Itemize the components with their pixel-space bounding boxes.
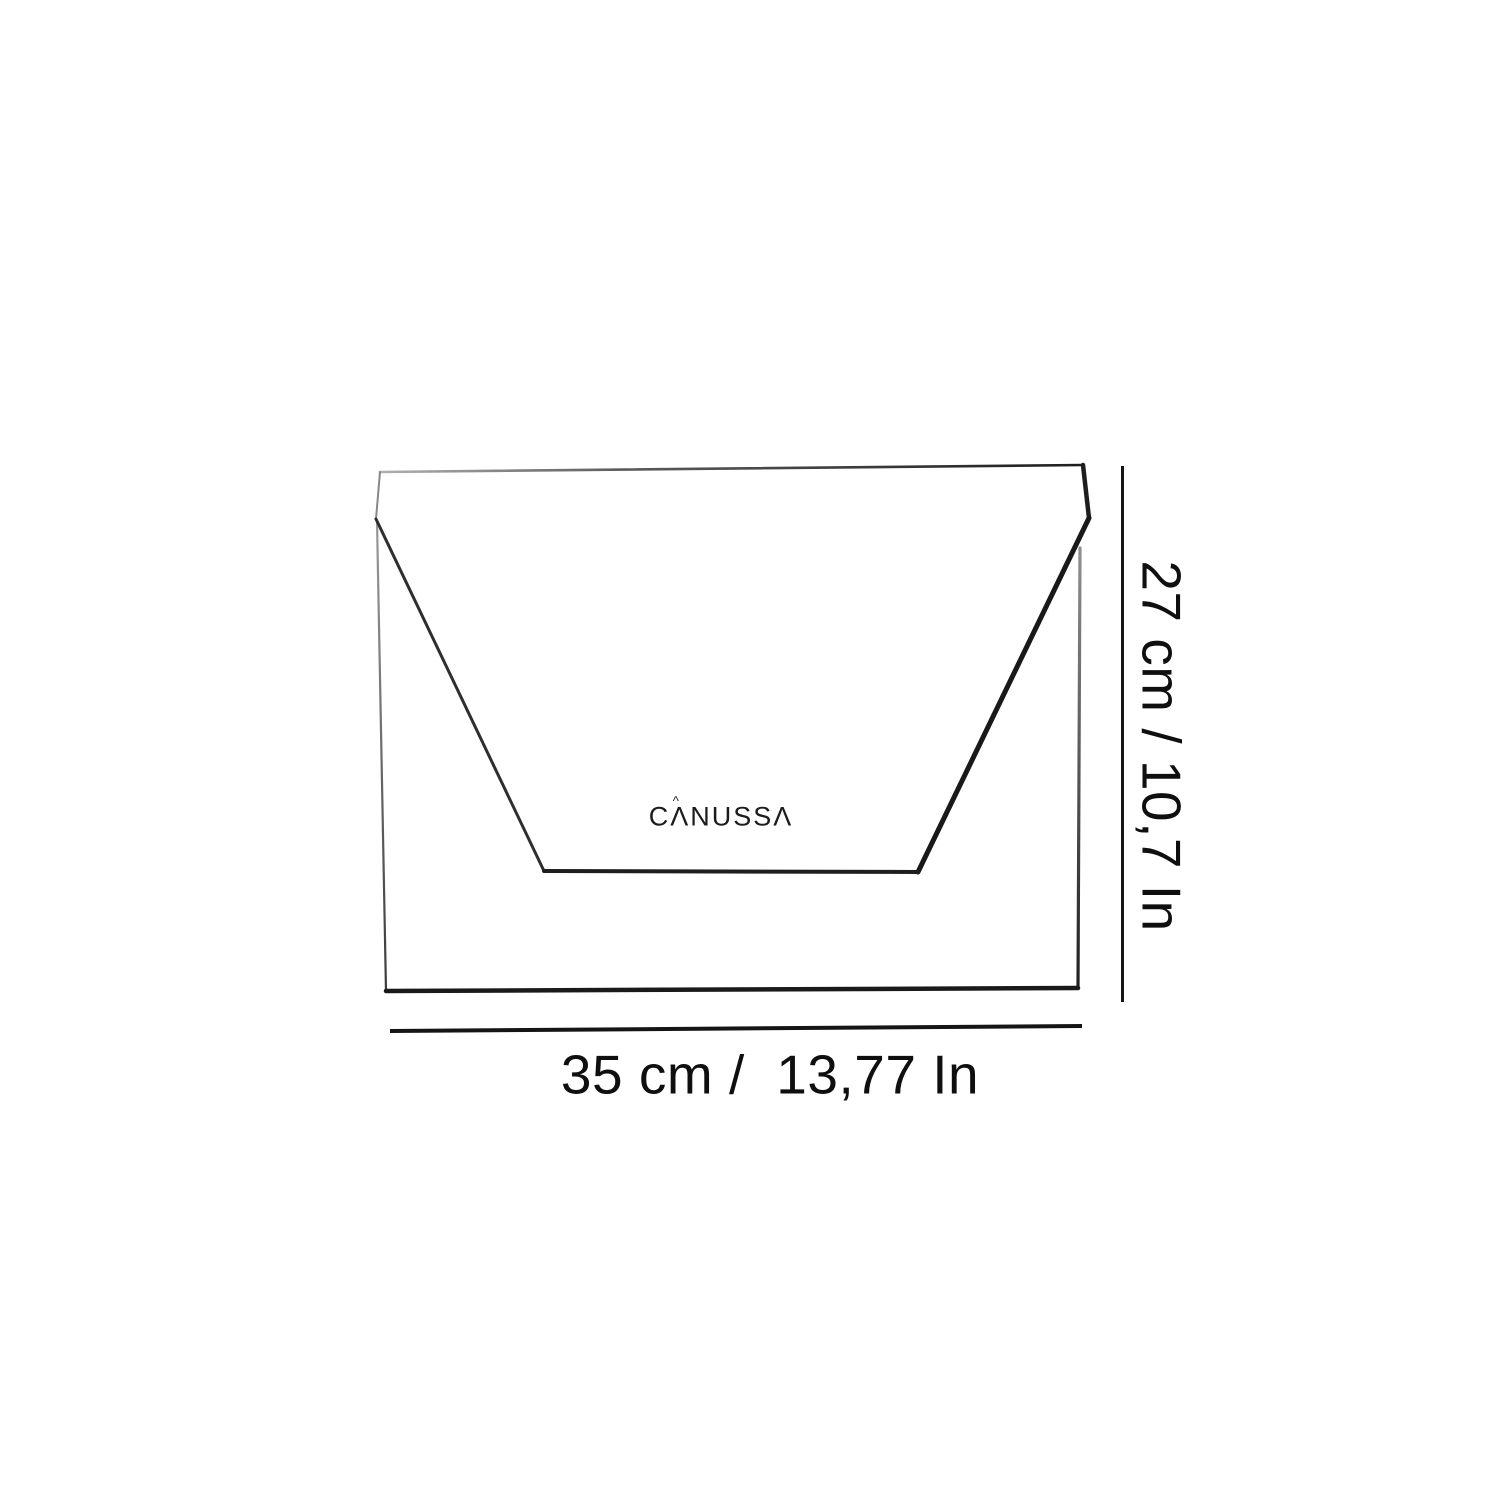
body-bottom-edge	[386, 988, 1078, 991]
height-dimension-label: 27 cm / 10,7 In	[1129, 560, 1192, 931]
width-dimension-label: 35 cm / 13,77 In	[561, 1043, 979, 1106]
flap-left-diagonal	[376, 519, 544, 871]
flap-right-diagonal	[918, 518, 1089, 872]
logo-accent-caret: ^	[673, 794, 679, 809]
flap-top-edge	[380, 465, 1083, 472]
dimension-diagram: CΛNUSSΛ ^ 27 cm / 10,7 In 35 cm / 13,77 …	[0, 0, 1500, 1500]
body-left-edge	[377, 521, 386, 991]
brand-logo: CΛNUSSΛ ^	[649, 802, 794, 833]
flap-bottom-edge	[544, 871, 918, 872]
flap-left-bevel	[376, 472, 380, 519]
width-dimension-line	[390, 1026, 1082, 1031]
bag-line-drawing	[0, 0, 1500, 1500]
body-right-edge	[1078, 548, 1080, 988]
logo-text: CΛNUSSΛ	[649, 802, 794, 832]
flap-right-bevel	[1083, 465, 1089, 518]
